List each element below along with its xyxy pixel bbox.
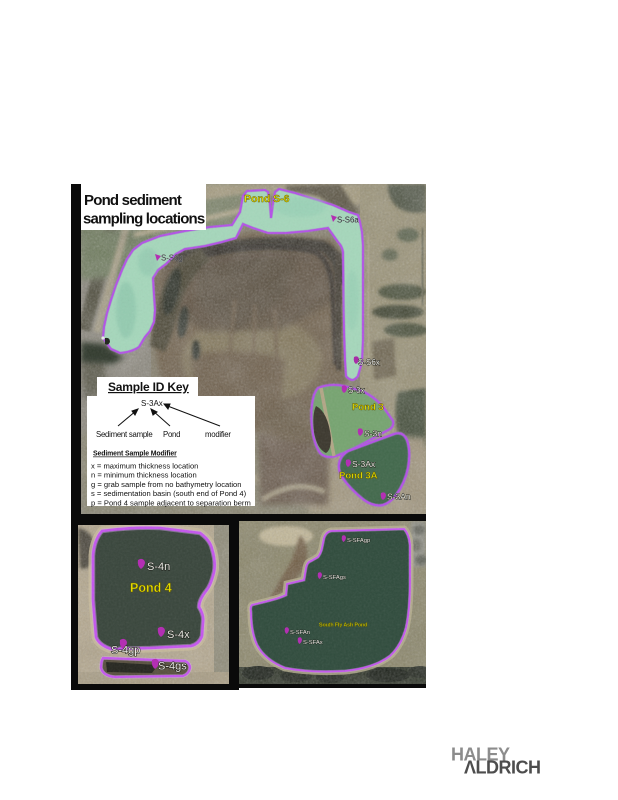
svg-text:S-4gs: S-4gs — [158, 661, 187, 673]
svg-text:S-3x: S-3x — [348, 386, 364, 395]
svg-text:g = grab sample from no bathym: g = grab sample from no bathymetry locat… — [91, 480, 241, 489]
svg-text:S-S6a: S-S6a — [337, 216, 359, 225]
svg-text:S-SFAx: S-SFAx — [303, 640, 323, 646]
svg-text:S-SFAgs: S-SFAgs — [323, 575, 346, 581]
svg-text:S-4n: S-4n — [147, 561, 170, 573]
svg-text:S-3An: S-3An — [387, 492, 411, 502]
svg-text:S-SFAgp: S-SFAgp — [347, 538, 370, 544]
svg-text:s = sedimentation basin (south: s = sedimentation basin (south end of Po… — [91, 489, 247, 498]
svg-text:Pond S-6: Pond S-6 — [244, 193, 290, 205]
svg-text:modifier: modifier — [205, 430, 231, 439]
svg-text:Pond sediment: Pond sediment — [84, 192, 182, 209]
svg-text:S-SFAn: S-SFAn — [290, 630, 310, 636]
svg-text:Pond: Pond — [163, 430, 180, 439]
svg-text:n = minimum thickness location: n = minimum thickness location — [91, 471, 197, 480]
svg-text:S-4x: S-4x — [167, 629, 190, 641]
svg-text:S-S6g: S-S6g — [161, 254, 183, 263]
svg-text:Sediment Sample Modifier: Sediment Sample Modifier — [93, 451, 177, 458]
svg-text:S-4gp: S-4gp — [111, 645, 140, 657]
svg-text:p = Pond 4 sample adjacent to: p = Pond 4 sample adjacent to separation… — [91, 498, 251, 507]
svg-text:S-3Ax: S-3Ax — [352, 459, 376, 469]
svg-text:Sample ID Key: Sample ID Key — [108, 380, 189, 394]
svg-text:Sediment sample: Sediment sample — [96, 430, 153, 439]
svg-text:S-3Ax: S-3Ax — [141, 399, 163, 408]
svg-text:x = maximum thickness location: x = maximum thickness location — [91, 462, 198, 471]
svg-text:Pond 3: Pond 3 — [352, 402, 384, 413]
svg-text:South Fly Ash Pond: South Fly Ash Pond — [319, 623, 367, 629]
svg-text:sampling locations: sampling locations — [83, 211, 205, 228]
svg-text:Pond 4: Pond 4 — [130, 581, 172, 595]
svg-text:S-S6x: S-S6x — [358, 358, 380, 367]
svg-text:S-3n: S-3n — [364, 429, 382, 439]
svg-text:Pond 3A: Pond 3A — [339, 471, 378, 482]
svg-text:ΛLDRICH: ΛLDRICH — [464, 758, 541, 778]
